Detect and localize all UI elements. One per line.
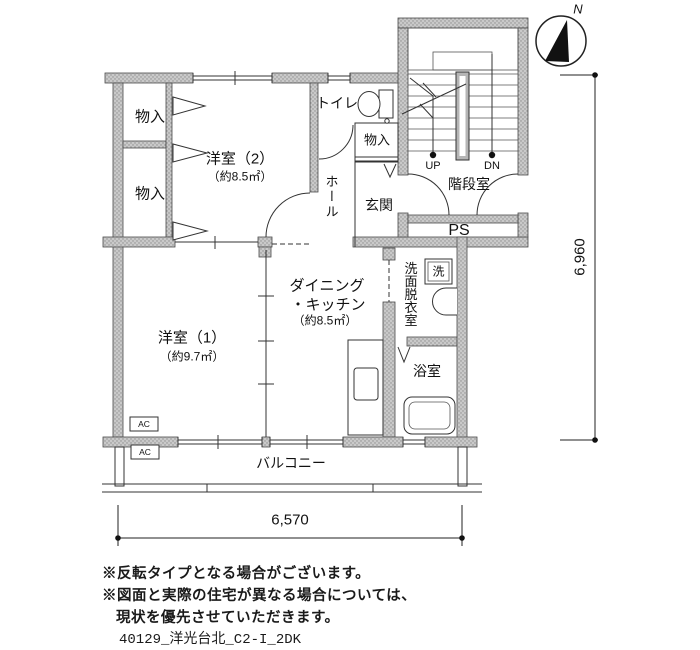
room-label-toilet: トイレ: [316, 93, 358, 113]
compass-north-label: N: [573, 2, 582, 17]
note-line-3: 現状を優先させていただきます。: [116, 606, 340, 627]
note-line-1: ※反転タイプとなる場合がございます。: [102, 562, 370, 583]
toilet-fixture-icon: [358, 90, 393, 123]
western2-door-arc: [266, 193, 310, 237]
entry-closet-door-icon: [384, 164, 396, 177]
bath-folding-door-icon: [398, 347, 410, 362]
window-top-2: [328, 73, 350, 83]
closet-door-icons: [173, 97, 207, 240]
stairs: [402, 28, 518, 160]
room-area-dk: （約8.5㎡）: [293, 312, 358, 329]
washbasin-icon: [433, 288, 458, 315]
label-pipe-space: PS: [448, 222, 469, 240]
dimension-height-value: 6,960: [572, 238, 589, 276]
room-label-entrance: 玄関: [365, 195, 393, 215]
window-bath: [403, 437, 425, 447]
room-area-western1: （約9.7㎡）: [160, 348, 225, 365]
room-label-western1: 洋室（1）: [158, 327, 226, 348]
room-label-closet-bottom: 物入: [135, 183, 165, 204]
room-label-bathroom: 浴室: [413, 361, 441, 381]
window-top-1: [193, 71, 272, 85]
kitchen-counter: [348, 340, 383, 435]
drawing-id-footer: 40129_洋光台北_C2-I_2DK: [119, 628, 301, 648]
room-label-stairwell: 階段室: [448, 174, 490, 194]
room-label-washroom: 洗面脱衣室: [401, 262, 420, 327]
kitchen-sink: [354, 368, 378, 400]
room-label-hall: ホール: [322, 175, 341, 220]
window-bottom-1: [178, 435, 262, 449]
note-line-2: ※図面と実際の住宅が異なる場合については、: [102, 584, 416, 605]
label-washer: 洗: [432, 263, 444, 280]
label-ac-1: AC: [138, 419, 150, 429]
room-label-western2: 洋室（2）: [206, 148, 274, 169]
room-label-balcony: バルコニー: [256, 453, 326, 473]
room-area-western2: （約8.5㎡）: [208, 168, 273, 185]
window-bottom-2: [270, 435, 343, 449]
toilet-door-arc: [319, 125, 353, 159]
label-ac-2: AC: [139, 447, 151, 457]
entrance-door-arc: [408, 174, 449, 215]
bathtub-icon: [404, 397, 455, 434]
room-label-closet-top: 物入: [135, 106, 165, 127]
room-label-dk-line1: ダイニング: [289, 275, 364, 296]
floor-plan-page: 物入 物入 洋室（2） （約8.5㎡） トイレ 物入 ホール 玄関 階段室 PS…: [0, 0, 700, 650]
dimension-width-value: 6,570: [271, 512, 309, 529]
compass-icon: [536, 16, 586, 66]
room-label-entry-closet: 物入: [364, 130, 390, 149]
label-stairs-up: UP: [425, 160, 440, 172]
label-stairs-down: DN: [484, 160, 500, 172]
